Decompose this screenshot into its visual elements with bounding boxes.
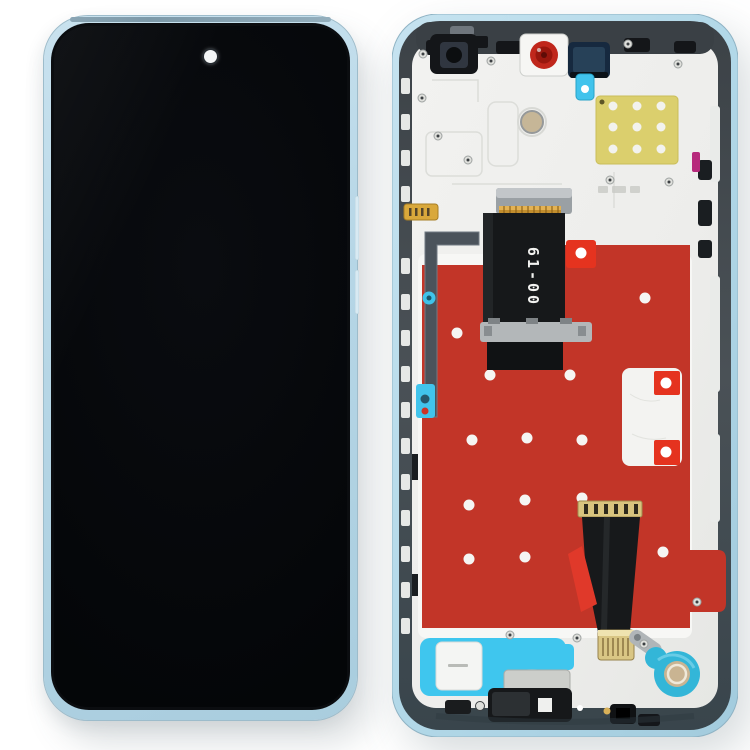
- lcd-screen: [54, 26, 347, 707]
- top-cutout: [674, 41, 696, 53]
- screen-glare: [54, 26, 347, 707]
- product-photo-canvas: 61-00: [0, 0, 750, 750]
- frame-top-edge: [70, 17, 331, 22]
- lcd-adhesive-sheet: [418, 240, 726, 638]
- front-camera-punch-hole: [204, 50, 217, 63]
- flex-bracket: [578, 501, 642, 517]
- adhesive-cutout-window: [622, 368, 682, 466]
- flex-cable-label: 61-00: [524, 247, 542, 307]
- gold-antenna-contact: [404, 204, 438, 220]
- stamped-marks: [598, 186, 640, 193]
- gold-contact-dot: [604, 708, 611, 715]
- rear-frame-drawing: 61-00: [392, 14, 738, 737]
- pull-tab-top: [566, 240, 596, 268]
- volume-button: [355, 196, 359, 260]
- white-label-sticker: [436, 642, 482, 690]
- calibration-sticker: [596, 96, 678, 164]
- flex-connector: [598, 630, 634, 660]
- cyan-tab-top: [576, 74, 594, 100]
- screw-boss: [518, 108, 546, 136]
- rear-frame-assembly: 61-00: [392, 14, 738, 737]
- flex-tail: [487, 342, 563, 370]
- power-button: [355, 270, 359, 314]
- front-assembly: [44, 16, 357, 720]
- rear-camera-bracket: [520, 34, 568, 76]
- display-bezel: [51, 23, 350, 710]
- magenta-seal: [692, 152, 700, 172]
- sensor-window: [568, 42, 610, 78]
